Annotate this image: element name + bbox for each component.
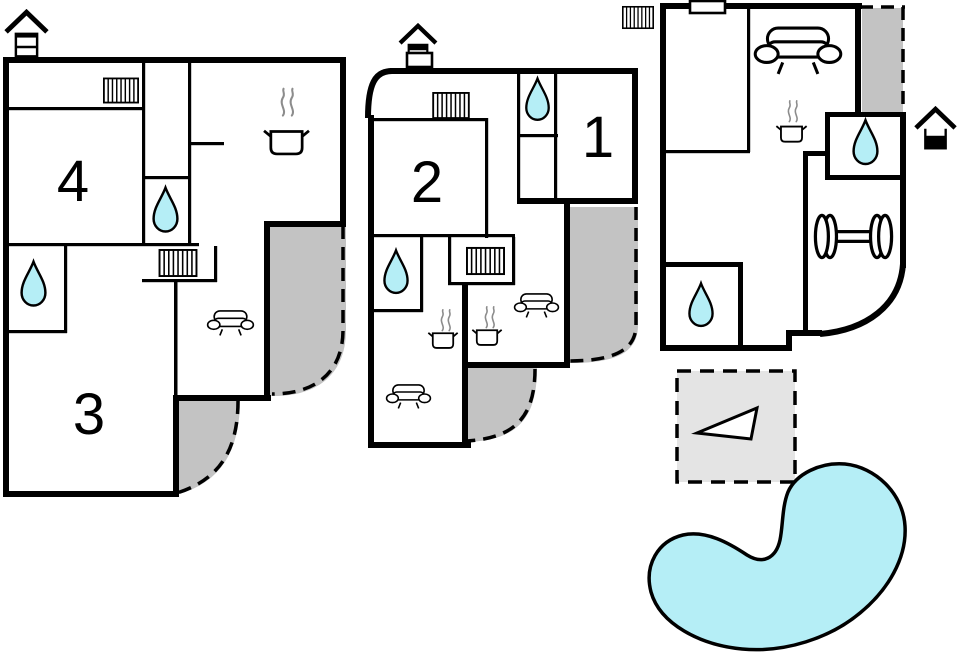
floor-level-icon-top-of-three (5, 11, 47, 56)
floor-level-icon-ground-of-two (915, 108, 956, 148)
steam-icon (441, 310, 450, 331)
outdoor-area (649, 371, 905, 650)
kitchen-pot-icon (472, 330, 501, 345)
shower-drop-icon (384, 250, 407, 293)
shower-drop-icon (689, 283, 712, 326)
terrace-top (862, 8, 903, 112)
room-label-3: 3 (73, 382, 105, 447)
floor-plan-canvas: 4 3 (0, 0, 957, 652)
kitchen-pot-icon (776, 126, 806, 142)
steam-icon (485, 307, 494, 328)
sofa-icon (515, 294, 559, 318)
shower-drop-icon (854, 120, 878, 164)
terrace-bottom (468, 368, 537, 442)
radiator-icon (104, 78, 138, 102)
steam-icon (282, 89, 293, 116)
unit-left: 4 3 (3, 11, 346, 497)
steam-icon (788, 101, 797, 122)
fitness-dumbbell-icon (815, 215, 891, 257)
kitchen-pot-icon (264, 131, 309, 154)
entrance-door (407, 53, 432, 67)
radiator-icon (160, 250, 197, 276)
room-label-2: 2 (411, 150, 443, 215)
shower-drop-icon (22, 262, 46, 306)
room-label-4: 4 (57, 149, 89, 214)
sofa-icon (387, 385, 431, 409)
unit-middle: 2 1 (368, 25, 638, 448)
floor-plan-svg: 4 3 (0, 0, 957, 652)
sofa-icon (208, 311, 254, 336)
kitchen-pot-icon (428, 333, 457, 348)
radiator-icon (433, 93, 469, 118)
shower-drop-icon (154, 188, 178, 232)
terrace-right (270, 224, 346, 396)
entrance-door (690, 1, 725, 13)
swimming-pool (649, 464, 905, 650)
terrace-right (570, 207, 638, 363)
sofa-icon (755, 28, 841, 74)
room-label-1: 1 (582, 105, 614, 170)
unit-right (623, 1, 956, 351)
shower-drop-icon (526, 79, 548, 120)
radiator-icon (623, 7, 653, 28)
radiator-icon (467, 248, 504, 274)
